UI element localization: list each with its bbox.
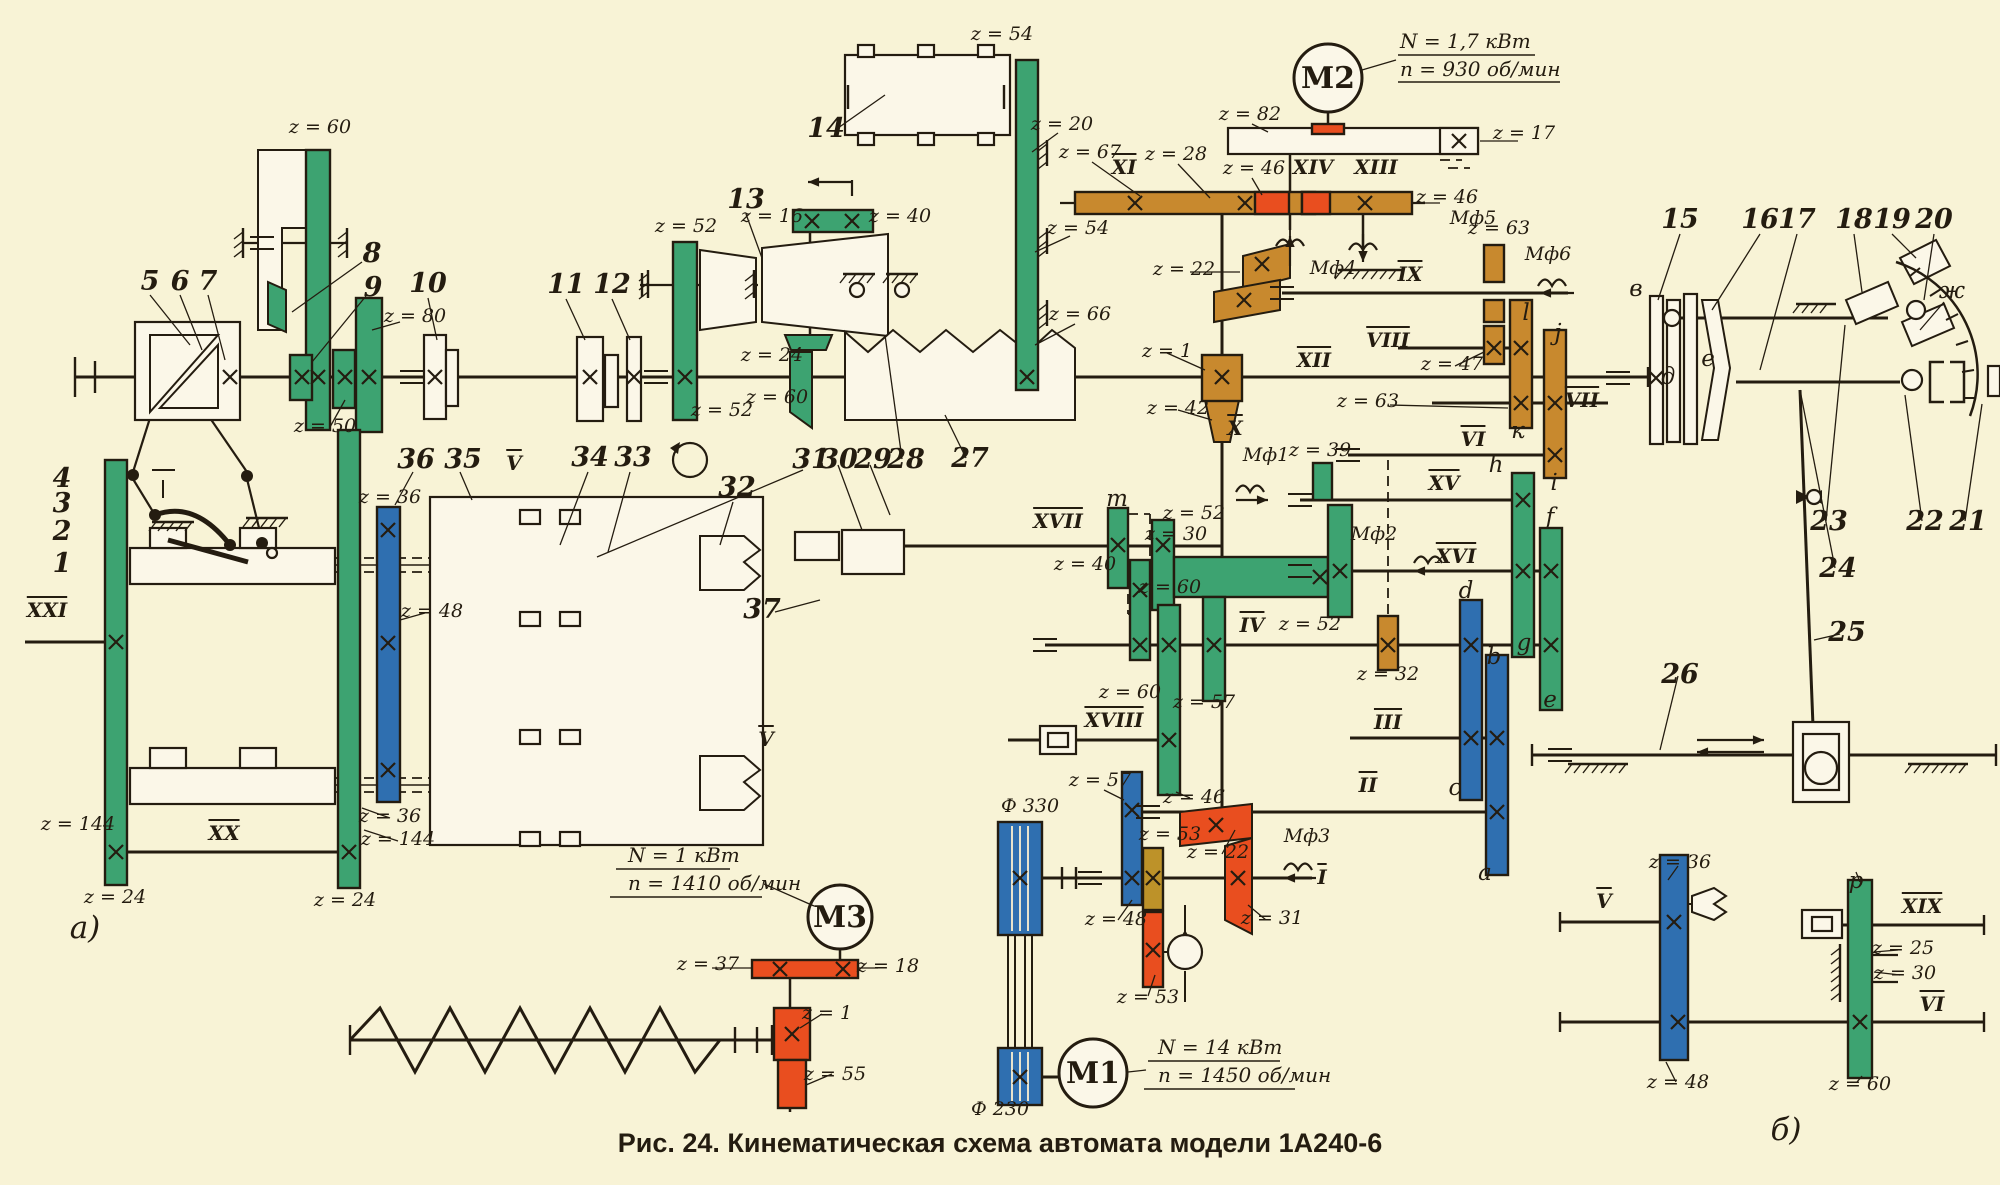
clutch-spring-icon: [1236, 486, 1264, 493]
arrow-head: [808, 177, 819, 186]
shaft-label-III: III: [1373, 710, 1403, 734]
gear-count-label-z = 30: z = 30: [1873, 962, 1936, 984]
gear-count-label-z = 28: z = 28: [1144, 143, 1207, 165]
shaft-label-XV: XV: [1426, 471, 1462, 495]
joint-circle-4: [1805, 752, 1837, 784]
wall-hatch-tick: [1831, 993, 1840, 1000]
gear-count-label-z = 32: z = 32: [1356, 663, 1419, 685]
ground-hatch-tick: [892, 274, 899, 283]
part-number-10: 10: [409, 268, 447, 299]
part-number-1: 1: [53, 548, 72, 579]
component-29: [240, 748, 276, 768]
label-c: c: [1449, 775, 1462, 801]
gear-count-label-z = 39: z = 39: [1288, 439, 1351, 461]
component-3: [978, 45, 994, 57]
gear-count-label-z = 48: z = 48: [400, 600, 463, 622]
leader-line-31: [460, 472, 472, 500]
gear-count-label-z = 52: z = 52: [1278, 613, 1341, 635]
label-Мф6: Мф6: [1524, 243, 1571, 265]
joint-circle-5: [1168, 935, 1202, 969]
motor-M1-label: М1: [1066, 1056, 1120, 1091]
label-g: g: [1517, 630, 1532, 656]
part-number-19: 19: [1873, 204, 1911, 235]
gear-count-label-z = 47: z = 47: [1420, 353, 1484, 375]
component-19: [560, 612, 580, 626]
wall-hatch-tick: [234, 241, 243, 248]
wall-hatch-tick: [338, 250, 347, 257]
label-Мф5: Мф5: [1449, 207, 1496, 229]
ground-hatch-tick: [185, 522, 192, 531]
part-number-17: 17: [1778, 204, 1816, 235]
ground-hatch-tick: [261, 518, 268, 527]
joint-circle-0: [1664, 310, 1680, 326]
shaft-line-47: [210, 418, 247, 472]
label-Мф4: Мф4: [1309, 257, 1356, 279]
motor-M2-note-1: n = 930 об/мин: [1400, 57, 1561, 81]
component-11: [446, 350, 458, 406]
gear-count-label-z = 57: z = 57: [1172, 691, 1236, 713]
component-13: [605, 355, 618, 407]
gear-z55: [778, 1060, 806, 1108]
part-number-9: 9: [364, 272, 383, 303]
ground-hatch-tick: [1950, 764, 1957, 773]
part-number-8: 8: [362, 238, 382, 269]
gear-z32: [1378, 616, 1398, 670]
gear-z63u: [1484, 245, 1504, 282]
part-number-6: 6: [171, 266, 190, 297]
leader-line-6: [566, 299, 585, 340]
label-е: е: [1701, 346, 1715, 372]
component-1: [858, 45, 874, 57]
gear-count-label-Ф 330: Ф 330: [1001, 795, 1059, 817]
shaft-label-XIV: XIV: [1291, 155, 1336, 179]
joint-circle-8: [241, 470, 253, 482]
gear-z36-z48: [377, 507, 400, 802]
wall-hatch-tick: [639, 274, 648, 281]
bar-xiii-red: [1302, 192, 1330, 214]
shaft-label-V: V: [758, 727, 776, 751]
ground-hatch-tick: [270, 518, 277, 527]
gear-count-label-z = 37: z = 37: [676, 953, 740, 975]
gear-z57g: [1203, 597, 1225, 701]
sector-tick-3: [1956, 341, 1968, 345]
leader-line-11: [1712, 234, 1760, 310]
shaft-label-XVIII: XVIII: [1082, 708, 1144, 732]
joint-circle-6: [1807, 490, 1821, 504]
gear-z16-z40: [793, 210, 873, 232]
part-number-16: 16: [1741, 204, 1779, 235]
shape-0: [700, 250, 756, 330]
shape-8: [1692, 888, 1726, 920]
motor-M3-note-1: п = 1410 об/мин: [628, 871, 801, 895]
shaft-label-XVI: XVI: [1434, 544, 1477, 568]
arrow-head: [1257, 495, 1268, 504]
gear-column-z54-z20-z54-z66: [1016, 60, 1038, 390]
ground-hatch-tick: [901, 274, 908, 283]
ground-hatch-tick: [1610, 764, 1617, 773]
gear-count-label-z = 24: z = 24: [83, 886, 146, 908]
shaft-label-V: V: [506, 451, 524, 475]
gear-count-label-z = 52: z = 52: [690, 399, 753, 421]
gear-count-label-z = 30: z = 30: [1144, 523, 1207, 545]
shaft-label-IX: IX: [1397, 262, 1424, 286]
gear-count-label-z = 16: z = 16: [740, 205, 803, 227]
joint-circle-10: [224, 539, 236, 551]
label-д: д: [1661, 364, 1676, 390]
gear-count-label-z = 25: z = 25: [1871, 937, 1934, 959]
gear-count-label-z = 144: z = 144: [360, 828, 435, 850]
wall-hatch-tick: [1831, 975, 1840, 982]
part-number-23: 23: [1809, 506, 1848, 537]
motor-M3-label: М3: [813, 900, 867, 935]
shaft-label-XI: XI: [1110, 155, 1138, 179]
label-i: i: [1550, 470, 1557, 496]
ground-hatch-tick: [1601, 764, 1608, 773]
gear-count-label-z = 55: z = 55: [803, 1063, 866, 1085]
shaft-label-XXI: XXI: [25, 598, 68, 622]
wall-hatch-tick: [1038, 304, 1047, 311]
gear-count-label-z = 66: z = 66: [1048, 303, 1111, 325]
component-41: [1988, 366, 2000, 396]
shaft-label-XX: XX: [206, 821, 241, 845]
wall-hatch-tick: [1831, 984, 1840, 991]
wall-hatch-tick: [1038, 153, 1047, 160]
gear-count-label-z = 1: z = 1: [801, 1002, 852, 1024]
ground-hatch-tick: [910, 274, 917, 283]
component-23: [560, 832, 580, 846]
part-number-18: 18: [1835, 204, 1873, 235]
motor-M1-note-0: N = 14 кВт: [1157, 1035, 1282, 1059]
part-number-36: 36: [397, 444, 435, 475]
gear-count-label-z = 144: z = 144: [40, 813, 115, 835]
outline-path-3: [1930, 362, 1944, 402]
shaft-line-48: [133, 479, 155, 515]
gear-count-label-z = 54: z = 54: [1046, 217, 1109, 239]
gear-count-label-z = 60: z = 60: [1098, 681, 1161, 703]
joint-circle-11: [256, 537, 268, 549]
motor-M2-note-0: N = 1,7 кВт: [1399, 29, 1531, 53]
gear-z47: [1484, 326, 1504, 364]
part-number-31: 31: [792, 444, 830, 475]
part-number-4: 4: [53, 463, 72, 494]
gear-z52: [673, 242, 697, 420]
gear-count-label-z = 20: z = 20: [1030, 113, 1093, 135]
ground-hatch-tick: [1914, 764, 1921, 773]
ground-hatch-tick: [1565, 764, 1572, 773]
part-number-29: 29: [853, 444, 892, 475]
gear-count-label-z = 46: z = 46: [1222, 157, 1285, 179]
shaft-label-VIII: VIII: [1366, 328, 1410, 352]
ground-hatch-tick: [1923, 764, 1930, 773]
shaft-label-II: II: [1358, 773, 1378, 797]
arrow-head: [1753, 735, 1764, 744]
gear-ix: [1484, 300, 1504, 322]
gear-p: [1848, 880, 1872, 1078]
gear-count-label-Ф 230: Ф 230: [971, 1098, 1029, 1120]
shaft-label-XVII: XVII: [1031, 509, 1083, 533]
label-Мф3: Мф3: [1283, 825, 1330, 847]
ground-hatch-tick: [1380, 270, 1387, 279]
gear-count-label-z = 36: z = 36: [1648, 851, 1711, 873]
motor-M2-note-leader: [1362, 60, 1396, 70]
gear-count-label-z = 50: z = 50: [293, 415, 356, 437]
outline-path-4: [1950, 362, 1964, 402]
gear-count-label-z = 48: z = 48: [1646, 1071, 1709, 1093]
ground-hatch-tick: [1574, 764, 1581, 773]
part-number-14: 14: [807, 113, 845, 144]
label-в: в: [1629, 276, 1642, 302]
part-number-11: 11: [547, 269, 585, 300]
wall-hatch-tick: [234, 250, 243, 257]
component-12: [577, 337, 603, 421]
clutch-spring-icon: [1284, 864, 1312, 871]
shaft-line-22: [1800, 390, 1814, 752]
leader-line-10: [1658, 234, 1680, 300]
label-Мф1: Мф1: [1242, 444, 1289, 466]
gear-b-a: [1486, 655, 1508, 875]
figure-caption: Рис. 24. Кинематическая схема автомата м…: [0, 1128, 2000, 1159]
gear-count-label-z = 24: z = 24: [740, 344, 803, 366]
ground-hatch-tick: [1905, 764, 1912, 773]
gear-d-c: [1460, 600, 1482, 800]
leader-line-12: [1760, 234, 1797, 370]
component-35: [1812, 917, 1832, 931]
wall-hatch-tick: [1038, 322, 1047, 329]
shape-3: [845, 330, 1075, 420]
part-number-34: 34: [571, 442, 609, 473]
gear-column-z36-z144: [338, 430, 360, 888]
motor-M3-note-0: N = 1 кВт: [627, 843, 740, 867]
shape-5: [1846, 282, 1898, 324]
ground-hatch-tick: [1362, 270, 1369, 279]
wall-hatch-tick: [1831, 948, 1840, 955]
shaft-label-XII: XII: [1295, 348, 1332, 372]
ground-hatch-tick: [243, 518, 250, 527]
gear-count-label-z = 42: z = 42: [1146, 397, 1209, 419]
gear-count-label-z = 60: z = 60: [1828, 1073, 1891, 1095]
clutch-spring-icon: [1538, 280, 1566, 287]
shaft-label-VI: VI: [1461, 427, 1487, 451]
shaft-label-XIII: XIII: [1352, 155, 1398, 179]
part-number-27: 27: [950, 443, 989, 474]
gear-count-label-z = 52: z = 52: [654, 215, 717, 237]
shaft-label-V: V: [1596, 889, 1614, 913]
part-number-15: 15: [1661, 204, 1699, 235]
component-30: [842, 530, 904, 574]
motor-M2-label: М2: [1301, 61, 1355, 96]
gear-count-label-z = 53: z = 53: [1116, 986, 1179, 1008]
gear-count-label-z = 60: z = 60: [288, 116, 351, 138]
label-a: a: [1478, 860, 1492, 886]
gear-count-label-z = 80: z = 80: [383, 305, 446, 327]
shaft-label-IV: IV: [1239, 613, 1267, 637]
component-4: [858, 133, 874, 145]
part-number-32: 32: [718, 472, 756, 503]
leader-line-45: [1390, 405, 1508, 408]
part-number-2: 2: [52, 516, 72, 547]
part-number-35: 35: [444, 444, 482, 475]
component-40: [1684, 294, 1697, 444]
gear-z39: [1313, 463, 1332, 500]
ground-hatch-tick: [1820, 304, 1827, 313]
joint-circle-7: [127, 469, 139, 481]
component-18: [520, 612, 540, 626]
component-14: [627, 337, 641, 421]
arrow-head: [1540, 288, 1551, 297]
gear-count-label-z = 36: z = 36: [358, 486, 421, 508]
shaft-line-46: [133, 418, 150, 472]
wall-hatch-tick: [1038, 232, 1047, 239]
wall-hatch-tick: [1831, 966, 1840, 973]
shaft-label-XIX: XIX: [1900, 894, 1944, 918]
gear-count-label-z = 24: z = 24: [313, 889, 376, 911]
joint-circle-1: [673, 443, 707, 477]
gear-count-label-z = 1: z = 1: [1141, 340, 1192, 362]
gear-z52r: [1328, 505, 1352, 617]
ground-hatch-tick: [1592, 764, 1599, 773]
part-number-28: 28: [886, 444, 925, 475]
gear-count-label-z = 82: z = 82: [1218, 103, 1281, 125]
component-22: [520, 832, 540, 846]
shape-1: [762, 234, 888, 336]
ground-hatch-tick: [1959, 764, 1966, 773]
label-к: к: [1511, 418, 1525, 444]
component-0: [845, 55, 1010, 135]
gear-z80: [356, 298, 382, 432]
shape-11: [268, 282, 286, 332]
gear-count-label-z = 46: z = 46: [1162, 786, 1225, 808]
ground-hatch-tick: [1941, 764, 1948, 773]
ground-hatch-tick: [1793, 304, 1800, 313]
ground-hatch-tick: [1802, 304, 1809, 313]
gear-count-label-z = 31: z = 31: [1240, 907, 1303, 929]
gear-count-label-z = 60: z = 60: [745, 386, 808, 408]
flag-m2: [1312, 124, 1344, 134]
leader-line-14: [1892, 234, 1916, 258]
ground-hatch-tick: [1583, 764, 1590, 773]
label-l: l: [1522, 300, 1529, 326]
joint-circle-3: [1907, 301, 1925, 319]
leader-line-13: [1854, 234, 1862, 292]
wall-hatch-tick: [1831, 957, 1840, 964]
gear-count-label-z = 40: z = 40: [868, 205, 931, 227]
leader-line-17: [1965, 404, 1982, 521]
wall-hatch-tick: [1038, 162, 1047, 169]
leader-line-18: [1905, 395, 1922, 521]
joint-circle-9: [149, 509, 161, 521]
wall-hatch-tick: [338, 232, 347, 239]
gear-count-label-z = 22: z = 22: [1152, 258, 1215, 280]
bar-xi-red: [1255, 192, 1289, 214]
label-а): а): [70, 910, 101, 946]
component-5: [918, 133, 934, 145]
wall-hatch-tick: [639, 292, 648, 299]
gear-count-label-z = 46: z = 46: [1415, 186, 1478, 208]
component-28: [150, 748, 186, 768]
gear-z30: [1108, 508, 1128, 588]
label-Мф2: Мф2: [1350, 523, 1397, 545]
gear-count-label-z = 22: z = 22: [1186, 841, 1249, 863]
arrow-head: [1414, 566, 1425, 575]
shaft-label-VII: VII: [1565, 388, 1600, 412]
label-ж: ж: [1939, 278, 1965, 304]
gear-f-e: [1540, 528, 1562, 710]
part-number-7: 7: [199, 266, 218, 297]
part-number-33: 33: [614, 442, 652, 473]
arrow-head: [1284, 873, 1295, 882]
joint-circle-14: [267, 548, 277, 558]
label-m: m: [1106, 486, 1128, 512]
part-number-5: 5: [141, 266, 160, 297]
component-27: [130, 768, 335, 804]
label-d: d: [1459, 578, 1474, 604]
part-number-25: 25: [1827, 617, 1866, 648]
component-31: [795, 532, 839, 560]
part-number-26: 26: [1660, 659, 1699, 690]
motor-M1-note-leader: [1128, 1070, 1146, 1072]
gear-count-label-z = 36: z = 36: [358, 805, 421, 827]
component-6: [978, 133, 994, 145]
part-number-20: 20: [1914, 204, 1953, 235]
gear-count-label-z = 54: z = 54: [970, 23, 1033, 45]
leader-line-7: [612, 299, 630, 340]
gear-count-label-z = 40: z = 40: [1053, 553, 1116, 575]
part-number-21: 21: [1948, 506, 1987, 537]
arrow-head: [1358, 251, 1367, 262]
ground-hatch-tick: [1811, 304, 1818, 313]
ground-hatch-tick: [1371, 270, 1378, 279]
shaft-label-I: I: [1316, 865, 1327, 889]
component-2: [918, 45, 934, 57]
shaft-label-X: X: [1225, 416, 1244, 440]
kinematic-diagram: М2N = 1,7 кВтn = 930 об/минМ3N = 1 кВтп …: [0, 0, 2000, 1185]
wall-hatch-tick: [234, 232, 243, 239]
part-number-22: 22: [1905, 506, 1944, 537]
gear-count-label-z = 48: z = 48: [1084, 908, 1147, 930]
component-24: [130, 548, 335, 584]
leader-line-19: [1826, 325, 1845, 521]
part-number-24: 24: [1818, 553, 1857, 584]
gear-count-label-z = 17: z = 17: [1492, 122, 1556, 144]
component-17: [560, 510, 580, 524]
ground-hatch-tick: [1619, 764, 1626, 773]
motor-M1-note-1: п = 1450 об/мин: [1158, 1063, 1331, 1087]
part-number-12: 12: [593, 269, 631, 300]
leader-line-33: [775, 600, 820, 612]
label-f: f: [1544, 504, 1558, 530]
gear-count-label-z = 60: z = 60: [1138, 576, 1201, 598]
part-number-37: 37: [743, 594, 781, 625]
joint-circle-2: [1902, 370, 1922, 390]
label-e: e: [1543, 687, 1557, 713]
component-21: [560, 730, 580, 744]
gear-count-label-z = 18: z = 18: [856, 955, 919, 977]
shaft-label-VI: VI: [1920, 992, 1946, 1016]
component-33: [1048, 733, 1068, 747]
label-b: b: [1487, 644, 1502, 670]
diagram-canvas: М2N = 1,7 кВтn = 930 об/минМ3N = 1 кВтп …: [0, 0, 2000, 1185]
joint-circle-13: [895, 283, 909, 297]
wall-hatch-tick: [1038, 313, 1047, 320]
component-20: [520, 730, 540, 744]
label-p: p: [1849, 868, 1864, 894]
component-16: [520, 510, 540, 524]
gear-count-label-z = 63: z = 63: [1336, 390, 1399, 412]
ground-hatch-tick: [1932, 764, 1939, 773]
label-h: h: [1489, 452, 1504, 478]
ground-hatch-tick: [279, 518, 286, 527]
gear-count-label-z = 57: z = 57: [1068, 769, 1132, 791]
